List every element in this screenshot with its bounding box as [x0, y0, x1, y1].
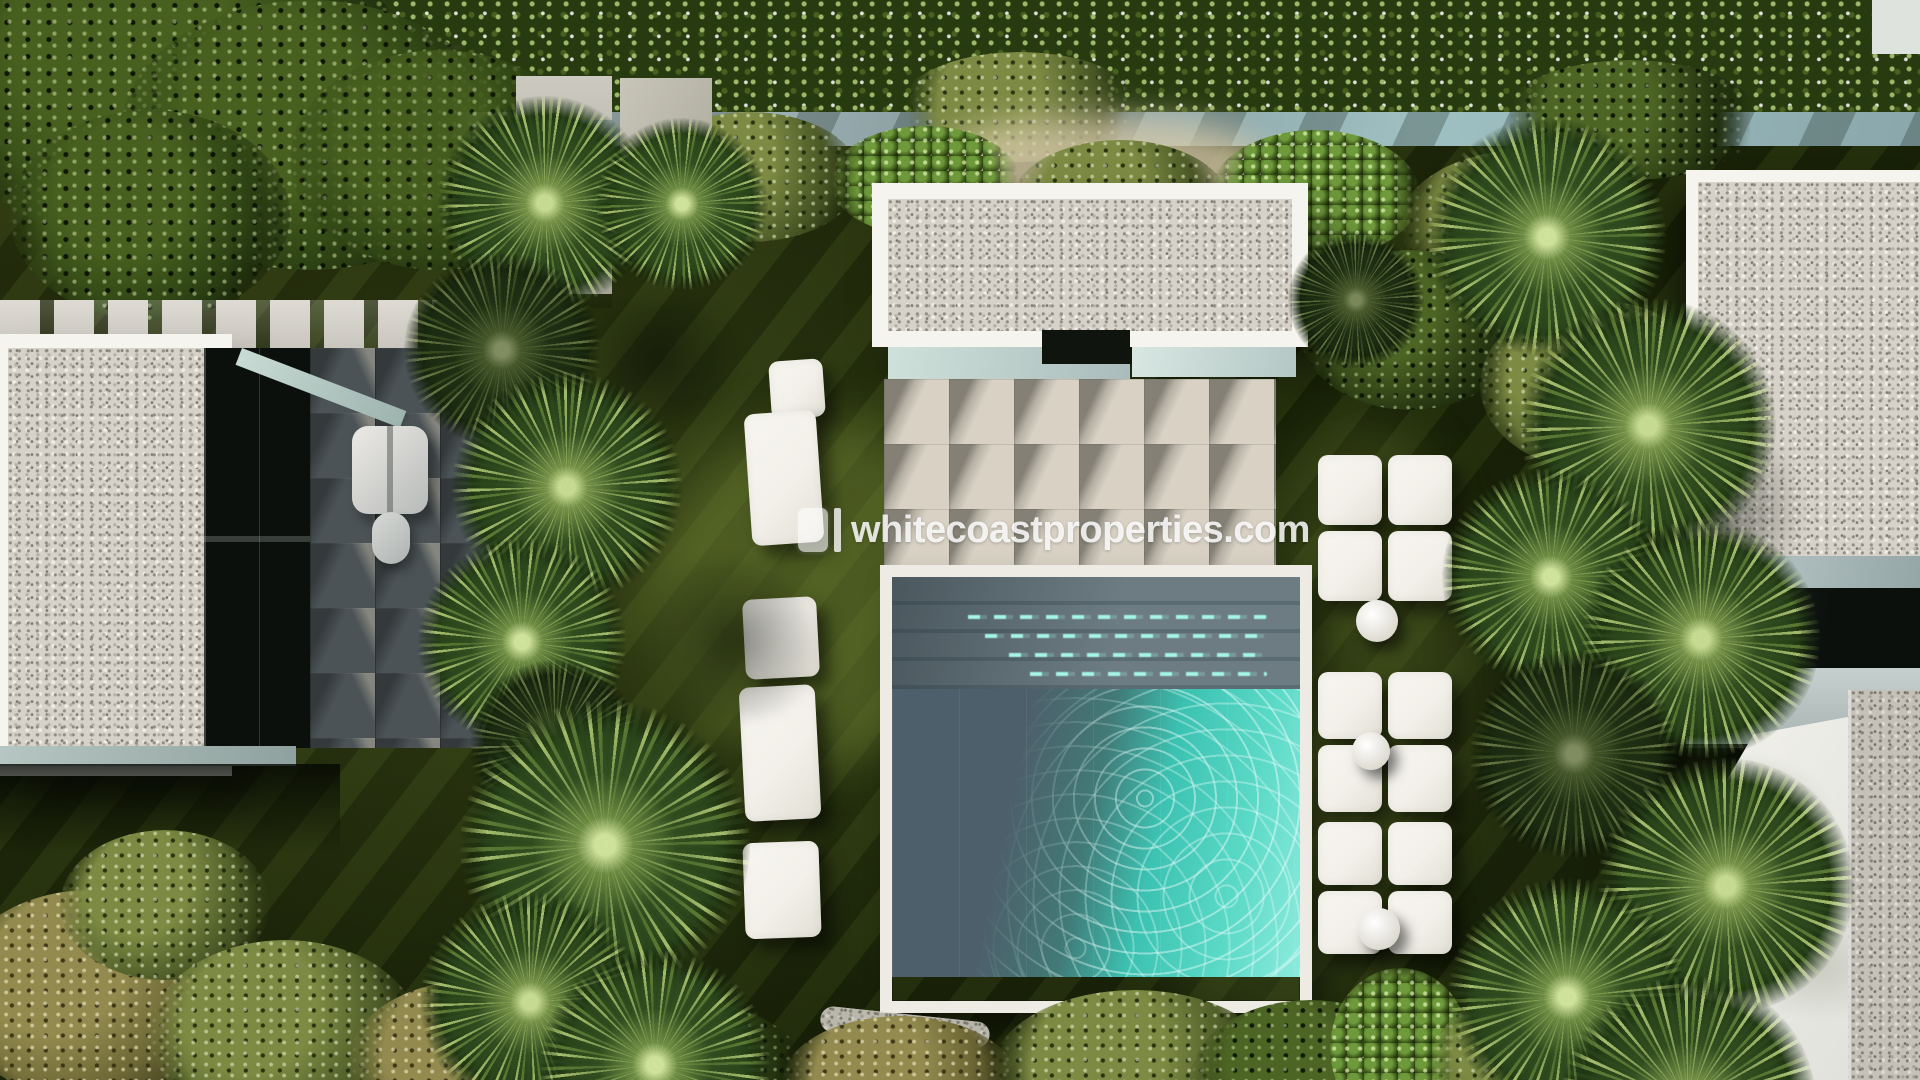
sun-lounger-set [1318, 455, 1452, 601]
pool-ripple-line [1002, 653, 1267, 657]
left-villa-roof [0, 334, 232, 776]
pool [880, 565, 1312, 1013]
watermark: whitecoastproperties.com [798, 508, 1310, 552]
side-table [1352, 732, 1390, 770]
pool-water [892, 689, 1300, 977]
outdoor-shower [352, 426, 428, 514]
pool-ripple-line [978, 634, 1268, 638]
gravel-strip [1848, 690, 1920, 1080]
villa-roof [872, 183, 1308, 347]
watermark-logo-icon [798, 508, 828, 552]
side-table [1356, 600, 1398, 642]
water-caustics [892, 689, 1300, 977]
lounger-cushion [1388, 822, 1452, 885]
lounger-cushion [742, 841, 821, 940]
lounger-cushion [1388, 745, 1452, 812]
side-table [1358, 908, 1400, 950]
left-villa-fascia [0, 746, 296, 766]
pool-ripple-line [1023, 672, 1268, 676]
palm-shadow [620, 560, 840, 720]
lounger-cushion [1388, 672, 1452, 739]
tree-canopy [10, 110, 290, 320]
left-villa-skylight [204, 348, 310, 748]
roof-fascia [1132, 347, 1296, 377]
roof-vent-slot [1042, 330, 1130, 364]
pool-ripple-line [961, 615, 1267, 619]
lounger-cushion [1388, 455, 1452, 525]
lounger-cushion [1318, 822, 1382, 885]
lounger-cushion [1318, 455, 1382, 525]
lounger-cushion [1318, 672, 1382, 739]
scene-canvas: whitecoastproperties.com [0, 0, 1920, 1080]
wall-sliver [1872, 0, 1920, 54]
lounger-cushion [1318, 531, 1382, 601]
palm-tree [596, 118, 768, 290]
palm-tree [1288, 232, 1424, 368]
outdoor-shower-tray [372, 512, 410, 564]
watermark-logo-bar-icon [834, 508, 841, 552]
watermark-text: whitecoastproperties.com [851, 509, 1310, 552]
